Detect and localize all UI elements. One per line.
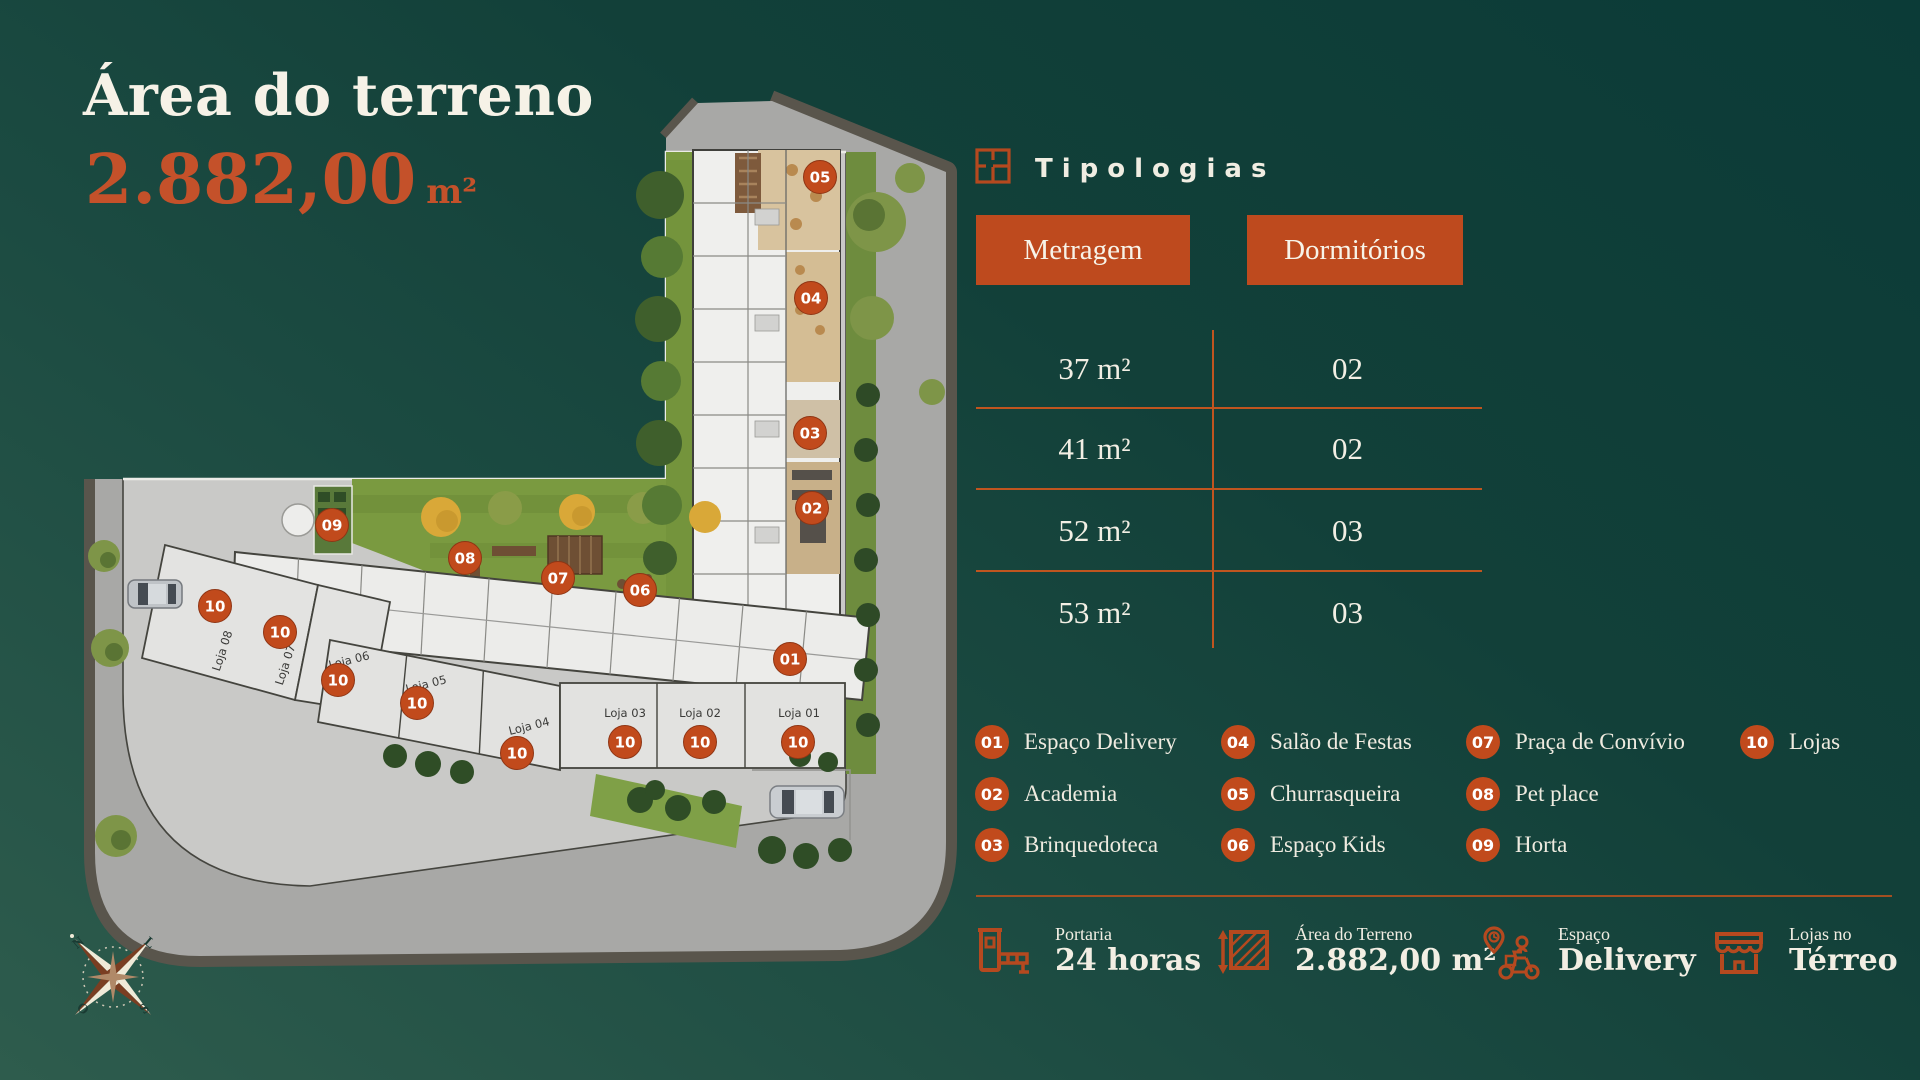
row-divider <box>976 488 1482 490</box>
svg-text:03: 03 <box>800 425 821 443</box>
legend-item: 05 Churrasqueira <box>1221 777 1400 811</box>
legend-number-badge: 04 <box>1221 725 1255 759</box>
plan-marker: 10 <box>322 664 355 697</box>
legend-label: Churrasqueira <box>1270 781 1400 807</box>
legend-number-badge: 07 <box>1466 725 1500 759</box>
svg-text:10: 10 <box>328 672 349 690</box>
legend-label: Pet place <box>1515 781 1599 807</box>
feature-lojas: Lojas no Térreo <box>1709 922 1898 984</box>
plan-marker: 09 <box>316 509 349 542</box>
legend-item: 09 Horta <box>1466 828 1567 862</box>
svg-text:04: 04 <box>801 290 822 308</box>
compass-rose: NLSO <box>70 934 158 1019</box>
svg-text:07: 07 <box>548 570 569 588</box>
plan-marker: 08 <box>449 542 482 575</box>
floorplan-icon <box>973 146 1013 191</box>
feature-label-small: Portaria <box>1055 924 1201 944</box>
svg-text:09: 09 <box>322 517 343 535</box>
feature-delivery: Espaço Delivery <box>1478 922 1696 984</box>
dormitorios-cell: 02 <box>1213 330 1482 408</box>
loja-label: Loja 02 <box>679 706 721 720</box>
svg-text:08: 08 <box>455 550 476 568</box>
section-divider <box>976 895 1892 897</box>
plan-marker: 03 <box>794 417 827 450</box>
svg-text:06: 06 <box>630 582 651 600</box>
row-divider <box>976 407 1482 409</box>
gate-icon <box>975 922 1039 984</box>
svg-text:01: 01 <box>780 651 801 669</box>
terrain-area-value: 2.882,00m² <box>85 140 477 220</box>
area-number: 2.882,00 <box>85 140 416 220</box>
svg-text:10: 10 <box>615 734 636 752</box>
dormitorios-cell: 02 <box>1213 410 1482 488</box>
car <box>128 580 182 608</box>
plan-marker: 07 <box>542 562 575 595</box>
page-title: Área do terreno <box>83 62 594 129</box>
feature-label-big: Térreo <box>1789 944 1898 978</box>
typologies-header: Tipologias <box>973 146 1275 191</box>
dormitorios-cell: 03 <box>1213 492 1482 570</box>
legend-label: Espaço Kids <box>1270 832 1386 858</box>
legend-item: 07 Praça de Convívio <box>1466 725 1685 759</box>
feature-portaria: Portaria 24 horas <box>975 922 1201 984</box>
loja-label: Loja 01 <box>778 706 820 720</box>
dormitorios-cell: 03 <box>1213 574 1482 652</box>
legend-number-badge: 10 <box>1740 725 1774 759</box>
plan-marker: 10 <box>401 687 434 720</box>
legend-label: Lojas <box>1789 729 1840 755</box>
compass-letter: S <box>137 1001 153 1018</box>
loja-label: Loja 03 <box>604 706 646 720</box>
svg-text:10: 10 <box>407 695 428 713</box>
plan-marker: 10 <box>199 590 232 623</box>
typologies-title: Tipologias <box>1035 154 1275 184</box>
legend-label: Salão de Festas <box>1270 729 1412 755</box>
legend-label: Academia <box>1024 781 1117 807</box>
svg-text:10: 10 <box>690 734 711 752</box>
svg-text:10: 10 <box>788 734 809 752</box>
feature-label-big: 24 horas <box>1055 944 1201 978</box>
table-row: 37 m² 02 <box>976 330 1482 408</box>
plan-marker: 05 <box>804 161 837 194</box>
svg-text:05: 05 <box>810 169 831 187</box>
table-row: 52 m² 03 <box>976 492 1482 570</box>
plan-marker: 10 <box>684 726 717 759</box>
terrain-area-icon <box>1215 922 1279 984</box>
legend-number-badge: 03 <box>975 828 1009 862</box>
plan-marker: 10 <box>609 726 642 759</box>
feature-label-small: Lojas no <box>1789 924 1898 944</box>
table-row: 41 m² 02 <box>976 410 1482 488</box>
metragem-button[interactable]: Metragem <box>976 215 1190 285</box>
metragem-cell: 37 m² <box>976 330 1213 408</box>
plan-marker: 02 <box>796 492 829 525</box>
legend-number-badge: 02 <box>975 777 1009 811</box>
legend-number-badge: 08 <box>1466 777 1500 811</box>
plan-marker: 10 <box>782 726 815 759</box>
feature-area: Área do Terreno 2.882,00 m² <box>1215 922 1496 984</box>
page: NLSO Loja 08Loja 07Loja 06Loja 05Loja 04… <box>0 0 1920 1080</box>
legend-label: Horta <box>1515 832 1567 858</box>
legend-number-badge: 05 <box>1221 777 1255 811</box>
legend-label: Praça de Convívio <box>1515 729 1685 755</box>
plan-marker: 01 <box>774 643 807 676</box>
legend-label: Espaço Delivery <box>1024 729 1177 755</box>
legend-number-badge: 01 <box>975 725 1009 759</box>
legend-number-badge: 06 <box>1221 828 1255 862</box>
water-tank-dome <box>282 504 314 536</box>
metragem-cell: 41 m² <box>976 410 1213 488</box>
legend-item: 08 Pet place <box>1466 777 1599 811</box>
legend-item: 06 Espaço Kids <box>1221 828 1386 862</box>
dormitorios-button[interactable]: Dormitórios <box>1247 215 1463 285</box>
plan-marker: 04 <box>795 282 828 315</box>
feature-label-small: Espaço <box>1558 924 1696 944</box>
legend-item: 10 Lojas <box>1740 725 1840 759</box>
feature-label-small: Área do Terreno <box>1295 924 1496 944</box>
plan-marker: 10 <box>264 616 297 649</box>
area-unit: m² <box>426 172 477 212</box>
delivery-scooter-icon <box>1478 922 1542 984</box>
svg-text:02: 02 <box>802 500 823 518</box>
table-row: 53 m² 03 <box>976 574 1482 652</box>
feature-label-big: 2.882,00 m² <box>1295 944 1496 978</box>
typologies-table: 37 m² 02 41 m² 02 52 m² 03 53 m² 03 <box>976 330 1482 652</box>
legend-label: Brinquedoteca <box>1024 832 1158 858</box>
metragem-cell: 53 m² <box>976 574 1213 652</box>
metragem-cell: 52 m² <box>976 492 1213 570</box>
legend-item: 04 Salão de Festas <box>1221 725 1412 759</box>
legend-number-badge: 09 <box>1466 828 1500 862</box>
plan-marker: 10 <box>501 737 534 770</box>
legend-item: 01 Espaço Delivery <box>975 725 1177 759</box>
svg-text:10: 10 <box>205 598 226 616</box>
car <box>770 786 844 818</box>
svg-text:10: 10 <box>270 624 291 642</box>
feature-label-big: Delivery <box>1558 944 1696 978</box>
column-divider <box>1212 330 1214 648</box>
storefront-icon <box>1709 922 1773 984</box>
legend-item: 03 Brinquedoteca <box>975 828 1158 862</box>
svg-text:10: 10 <box>507 745 528 763</box>
row-divider <box>976 570 1482 572</box>
plan-marker: 06 <box>624 574 657 607</box>
legend-item: 02 Academia <box>975 777 1117 811</box>
